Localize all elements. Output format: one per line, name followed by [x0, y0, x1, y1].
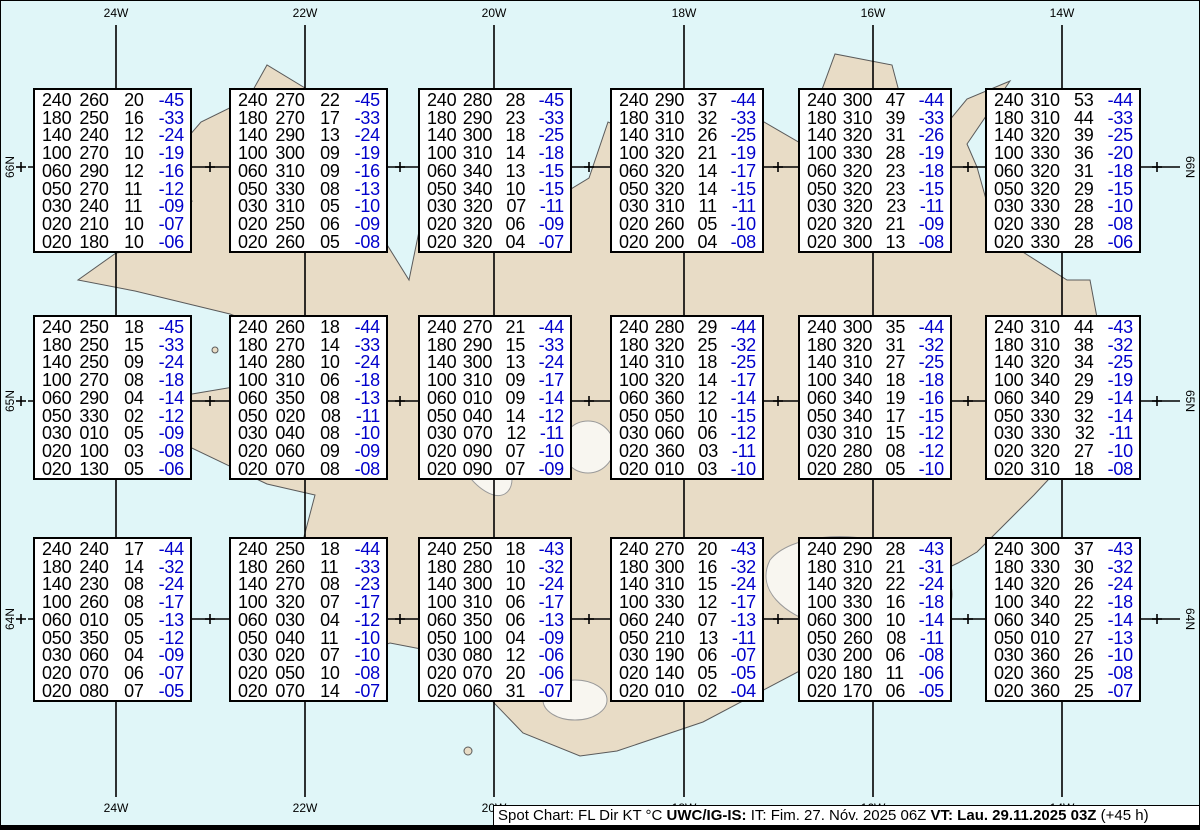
flight-level-value: 020: [238, 683, 275, 701]
wind-speed-value: 07: [506, 443, 539, 461]
longitude-label-top-16W: 16W: [861, 6, 886, 20]
wind-speed-value: 10: [886, 612, 919, 630]
wind-direction-value: 350: [275, 390, 320, 408]
temperature-value: -13: [731, 612, 756, 630]
data-row: 02001003-10: [612, 461, 762, 479]
flight-level-value: 060: [807, 612, 843, 630]
data-row: 06032014-17: [612, 163, 762, 181]
wind-direction-value: 320: [463, 216, 506, 234]
wind-speed-value: 07: [506, 461, 539, 479]
flight-level-value: 060: [238, 612, 275, 630]
flight-level-value: 020: [994, 216, 1030, 234]
data-row: 02001002-04: [612, 683, 762, 701]
temperature-value: -08: [159, 443, 184, 461]
wind-direction-value: 260: [275, 234, 320, 252]
flight-level-value: 060: [994, 612, 1030, 630]
wind-direction-value: 290: [79, 390, 124, 408]
wind-speed-value: 12: [124, 163, 159, 181]
temperature-value: -09: [539, 461, 564, 479]
wind-speed-value: 04: [506, 234, 539, 252]
longitude-label-bottom-24W: 24W: [104, 801, 129, 815]
wind-direction-value: 340: [1030, 390, 1074, 408]
wind-direction-value: 010: [655, 461, 698, 479]
wind-speed-value: 10: [124, 234, 159, 252]
wind-speed-value: 06: [124, 665, 159, 683]
data-row: 02030013-08: [800, 234, 950, 252]
wind-speed-value: 08: [320, 461, 355, 479]
temperature-value: -14: [539, 390, 564, 408]
flight-level-value: 020: [427, 443, 463, 461]
data-row: 02026005-08: [231, 234, 386, 252]
data-row: 06024007-13: [612, 612, 762, 630]
data-row: 02006009-09: [231, 443, 386, 461]
flight-level-value: 060: [427, 390, 463, 408]
flight-level-value: 060: [42, 163, 79, 181]
wind-speed-value: 08: [320, 390, 355, 408]
wind-direction-value: 310: [275, 163, 320, 181]
flight-level-value: 020: [807, 665, 843, 683]
wind-direction-value: 070: [79, 665, 124, 683]
wind-speed-value: 03: [124, 443, 159, 461]
wind-speed-value: 05: [698, 216, 731, 234]
wind-direction-value: 300: [843, 234, 886, 252]
data-row: 02009007-09: [420, 461, 570, 479]
wind-direction-value: 010: [655, 683, 698, 701]
latitude-label-right-64N: 64N: [1183, 608, 1197, 630]
spot-data-box-r2c5: 24030035-4418032031-3214031027-251003401…: [798, 315, 952, 480]
wind-direction-value: 030: [275, 612, 320, 630]
spot-data-box-r2c2: 24026018-4418027014-3314028010-241003100…: [229, 315, 388, 480]
data-row: 02025006-09: [231, 216, 386, 234]
flight-level-value: 060: [807, 163, 843, 181]
data-row: 02010003-08: [35, 443, 190, 461]
temperature-value: -14: [919, 612, 944, 630]
temperature-value: -13: [539, 612, 564, 630]
data-row: 06035006-13: [420, 612, 570, 630]
wind-speed-value: 23: [886, 163, 919, 181]
temperature-value: -14: [159, 390, 184, 408]
temperature-value: -12: [355, 612, 380, 630]
temperature-value: -17: [731, 163, 756, 181]
wind-direction-value: 240: [655, 612, 698, 630]
wind-direction-value: 340: [843, 390, 886, 408]
flight-level-value: 060: [619, 612, 655, 630]
footer-text: (+45 h): [1096, 807, 1148, 824]
data-row: 02032004-07: [420, 234, 570, 252]
wind-speed-value: 14: [320, 683, 355, 701]
wind-speed-value: 05: [320, 234, 355, 252]
wind-direction-value: 320: [843, 216, 886, 234]
data-row: 02014005-05: [612, 665, 762, 683]
longitude-label-top-20W: 20W: [482, 6, 507, 20]
flight-level-value: 020: [807, 683, 843, 701]
wind-direction-value: 070: [463, 665, 506, 683]
temperature-value: -12: [919, 443, 944, 461]
flight-level-value: 020: [807, 234, 843, 252]
temperature-value: -05: [731, 665, 756, 683]
flight-level-value: 060: [238, 163, 275, 181]
wind-direction-value: 140: [655, 665, 698, 683]
wind-speed-value: 28: [1074, 234, 1108, 252]
spot-data-box-r2c4: 24028029-4418032025-3214031018-251003201…: [610, 315, 764, 480]
wind-speed-value: 13: [506, 163, 539, 181]
flight-level-value: 020: [42, 234, 79, 252]
temperature-value: -04: [731, 683, 756, 701]
wind-speed-value: 29: [1074, 390, 1108, 408]
flight-level-value: 020: [994, 443, 1030, 461]
wind-speed-value: 09: [320, 163, 355, 181]
wind-speed-value: 05: [698, 665, 731, 683]
flight-level-value: 020: [427, 216, 463, 234]
flight-level-value: 020: [994, 461, 1030, 479]
wind-speed-value: 06: [320, 216, 355, 234]
temperature-value: -14: [1108, 612, 1133, 630]
data-row: 02018010-06: [35, 234, 190, 252]
wind-speed-value: 03: [698, 461, 731, 479]
wind-direction-value: 330: [1030, 216, 1074, 234]
data-row: 02033028-06: [987, 234, 1139, 252]
longitude-label-bottom-22W: 22W: [293, 801, 318, 815]
wind-direction-value: 320: [1030, 443, 1074, 461]
temperature-value: -15: [539, 163, 564, 181]
footer-bold-text: VT: Lau. 29.11.2025 03Z: [931, 807, 1097, 824]
data-row: 02007008-08: [231, 461, 386, 479]
data-row: 06029004-14: [35, 390, 190, 408]
footer-bold-text: UWC/IG-IS:: [667, 807, 747, 824]
wind-direction-value: 290: [79, 163, 124, 181]
wind-speed-value: 08: [886, 443, 919, 461]
data-row: 06003004-12: [231, 612, 386, 630]
data-row: 02026005-10: [612, 216, 762, 234]
wind-speed-value: 25: [1074, 612, 1108, 630]
wind-direction-value: 070: [275, 683, 320, 701]
temperature-value: -08: [1108, 461, 1133, 479]
temperature-value: -10: [1108, 443, 1133, 461]
temperature-value: -16: [355, 163, 380, 181]
temperature-value: -18: [1108, 163, 1133, 181]
wind-speed-value: 10: [124, 216, 159, 234]
temperature-value: -07: [355, 683, 380, 701]
data-row: 02013005-06: [35, 461, 190, 479]
temperature-value: -05: [919, 683, 944, 701]
latitude-label-left-64N: 64N: [3, 608, 17, 630]
wind-speed-value: 09: [320, 443, 355, 461]
spot-data-box-r3c4: 24027020-4318030016-3214031015-241003301…: [610, 537, 764, 702]
data-row: 02007020-06: [420, 665, 570, 683]
data-row: 06034019-16: [800, 390, 950, 408]
flight-level-value: 020: [427, 683, 463, 701]
wind-direction-value: 200: [655, 234, 698, 252]
wind-direction-value: 170: [843, 683, 886, 701]
wind-direction-value: 180: [843, 665, 886, 683]
flight-level-value: 020: [427, 665, 463, 683]
data-row: 06001005-13: [35, 612, 190, 630]
longitude-label-top-22W: 22W: [293, 6, 318, 20]
wind-speed-value: 25: [1074, 683, 1108, 701]
wind-speed-value: 31: [506, 683, 539, 701]
wind-direction-value: 210: [79, 216, 124, 234]
flight-level-value: 020: [42, 461, 79, 479]
flight-level-value: 060: [427, 612, 463, 630]
vestmannaeyjar-island: [464, 747, 472, 755]
flight-level-value: 020: [994, 683, 1030, 701]
wind-direction-value: 060: [463, 683, 506, 701]
flight-level-value: 060: [42, 612, 79, 630]
temperature-value: -08: [1108, 665, 1133, 683]
flight-level-value: 020: [994, 665, 1030, 683]
wind-direction-value: 010: [79, 612, 124, 630]
wind-speed-value: 07: [698, 612, 731, 630]
flight-level-value: 020: [42, 683, 79, 701]
data-row: 02018011-06: [800, 665, 950, 683]
temperature-value: -06: [1108, 234, 1133, 252]
temperature-value: -13: [355, 390, 380, 408]
wind-direction-value: 180: [79, 234, 124, 252]
latitude-label-left-66N: 66N: [3, 156, 17, 178]
wind-direction-value: 360: [655, 390, 698, 408]
bottom-black-strip: [0, 825, 1200, 830]
flight-level-value: 020: [619, 234, 655, 252]
data-row: 02028008-12: [800, 443, 950, 461]
flight-level-value: 020: [619, 665, 655, 683]
wind-speed-value: 05: [124, 612, 159, 630]
flight-level-value: 020: [238, 216, 275, 234]
temperature-value: -07: [1108, 683, 1133, 701]
temperature-value: -07: [159, 665, 184, 683]
wind-direction-value: 300: [843, 612, 886, 630]
temperature-value: -06: [919, 665, 944, 683]
wind-direction-value: 320: [843, 163, 886, 181]
data-row: 02033028-08: [987, 216, 1139, 234]
data-row: 06032023-18: [800, 163, 950, 181]
wind-speed-value: 27: [1074, 443, 1108, 461]
temperature-value: -09: [355, 216, 380, 234]
data-row: 06029012-16: [35, 163, 190, 181]
wind-speed-value: 07: [124, 683, 159, 701]
wind-direction-value: 250: [275, 216, 320, 234]
data-row: 06001009-14: [420, 390, 570, 408]
wind-direction-value: 090: [463, 461, 506, 479]
flight-level-value: 020: [807, 443, 843, 461]
wind-direction-value: 060: [275, 443, 320, 461]
spot-data-box-r1c3: 24028028-4518029023-3314030018-251003101…: [418, 88, 572, 253]
wind-direction-value: 340: [1030, 612, 1074, 630]
wind-speed-value: 19: [886, 390, 919, 408]
temperature-value: -16: [159, 163, 184, 181]
wind-direction-value: 340: [463, 163, 506, 181]
wind-direction-value: 080: [79, 683, 124, 701]
wind-direction-value: 280: [843, 461, 886, 479]
footer-info-bar: Spot Chart: FL Dir KT °C UWC/IG-IS: IT: …: [493, 805, 1200, 826]
data-row: 02020004-08: [612, 234, 762, 252]
wind-direction-value: 310: [1030, 461, 1074, 479]
wind-speed-value: 02: [698, 683, 731, 701]
spot-data-box-r3c3: 24025018-4318028010-3214030010-241003100…: [418, 537, 572, 702]
flight-level-value: 060: [807, 390, 843, 408]
breidafjordur-island: [212, 347, 218, 353]
flight-level-value: 020: [238, 443, 275, 461]
wind-direction-value: 280: [843, 443, 886, 461]
wind-speed-value: 04: [698, 234, 731, 252]
temperature-value: -07: [539, 234, 564, 252]
flight-level-value: 020: [807, 461, 843, 479]
temperature-value: -10: [731, 216, 756, 234]
wind-direction-value: 320: [655, 163, 698, 181]
temperature-value: -09: [919, 216, 944, 234]
data-row: 06035008-13: [231, 390, 386, 408]
data-row: 02006031-07: [420, 683, 570, 701]
temperature-value: -08: [355, 665, 380, 683]
temperature-value: -08: [355, 234, 380, 252]
wind-speed-value: 05: [886, 461, 919, 479]
wind-direction-value: 260: [655, 216, 698, 234]
latitude-label-right-65N: 65N: [1183, 390, 1197, 412]
footer-text: IT: Fim. 27. Nóv. 2025 06Z: [747, 807, 931, 824]
wind-direction-value: 090: [463, 443, 506, 461]
flight-level-value: 020: [619, 443, 655, 461]
wind-direction-value: 320: [463, 234, 506, 252]
wind-direction-value: 130: [79, 461, 124, 479]
flight-level-value: 060: [427, 163, 463, 181]
wind-speed-value: 06: [506, 612, 539, 630]
flight-level-value: 020: [619, 683, 655, 701]
data-row: 02005010-08: [231, 665, 386, 683]
temperature-value: -14: [731, 390, 756, 408]
temperature-value: -06: [159, 234, 184, 252]
flight-level-value: 020: [807, 216, 843, 234]
data-row: 06031009-16: [231, 163, 386, 181]
wind-direction-value: 350: [463, 612, 506, 630]
temperature-value: -07: [539, 683, 564, 701]
temperature-value: -09: [355, 443, 380, 461]
data-row: 06036012-14: [612, 390, 762, 408]
flight-level-value: 060: [42, 390, 79, 408]
temperature-value: -18: [919, 163, 944, 181]
longitude-label-top-24W: 24W: [104, 6, 129, 20]
flight-level-value: 020: [427, 234, 463, 252]
wind-direction-value: 320: [1030, 163, 1074, 181]
latitude-label-right-66N: 66N: [1183, 156, 1197, 178]
spot-data-box-r1c6: 24031053-4418031044-3314032039-251003303…: [985, 88, 1141, 253]
wind-speed-value: 12: [698, 390, 731, 408]
wind-speed-value: 04: [320, 612, 355, 630]
spot-data-box-r1c2: 24027022-4518027017-3314029013-241003000…: [229, 88, 388, 253]
temperature-value: -10: [919, 461, 944, 479]
wind-speed-value: 10: [320, 665, 355, 683]
temperature-value: -08: [355, 461, 380, 479]
spot-data-box-r3c1: 24024017-4418024014-3214023008-241002600…: [33, 537, 192, 702]
wind-speed-value: 06: [886, 683, 919, 701]
spot-data-box-r2c1: 24025018-4518025015-3314025009-241002700…: [33, 315, 192, 480]
longitude-label-top-14W: 14W: [1050, 6, 1075, 20]
wind-direction-value: 360: [1030, 665, 1074, 683]
footer-text: Spot Chart: FL Dir KT °C: [498, 807, 667, 824]
flight-level-value: 020: [238, 665, 275, 683]
flight-level-value: 020: [619, 216, 655, 234]
spot-data-box-r2c3: 24027021-4418029015-3314030013-241003100…: [418, 315, 572, 480]
spot-data-box-r3c6: 24030037-4318033030-3214032026-241003402…: [985, 537, 1141, 702]
data-row: 06034029-14: [987, 390, 1139, 408]
flight-level-value: 060: [994, 163, 1030, 181]
wind-speed-value: 09: [506, 390, 539, 408]
data-row: 02007006-07: [35, 665, 190, 683]
temperature-value: -08: [1108, 216, 1133, 234]
temperature-value: -09: [539, 216, 564, 234]
spot-data-box-r1c1: 24026020-4518025016-3314024012-241002701…: [33, 88, 192, 253]
data-row: 02021010-07: [35, 216, 190, 234]
spot-data-box-r1c4: 24029037-4418031032-3314031026-251003202…: [610, 88, 764, 253]
wind-speed-value: 05: [124, 461, 159, 479]
temperature-value: -05: [159, 683, 184, 701]
spot-data-box-r1c5: 24030047-4418031039-3314032031-261003302…: [798, 88, 952, 253]
wind-speed-value: 25: [1074, 665, 1108, 683]
flight-level-value: 020: [238, 234, 275, 252]
wind-direction-value: 070: [275, 461, 320, 479]
wind-direction-value: 330: [1030, 234, 1074, 252]
temperature-value: -08: [919, 234, 944, 252]
flight-level-value: 020: [42, 443, 79, 461]
wind-speed-value: 04: [124, 390, 159, 408]
temperature-value: -14: [1108, 390, 1133, 408]
flight-level-value: 020: [238, 461, 275, 479]
data-row: 02008007-05: [35, 683, 190, 701]
temperature-value: -08: [731, 234, 756, 252]
temperature-value: -16: [919, 390, 944, 408]
flight-level-value: 020: [42, 216, 79, 234]
flight-level-value: 020: [619, 461, 655, 479]
wind-direction-value: 360: [655, 443, 698, 461]
flight-level-value: 060: [619, 390, 655, 408]
temperature-value: -06: [539, 665, 564, 683]
temperature-value: -10: [539, 443, 564, 461]
wind-speed-value: 31: [1074, 163, 1108, 181]
wind-speed-value: 28: [1074, 216, 1108, 234]
data-row: 06030010-14: [800, 612, 950, 630]
data-row: 02036003-11: [612, 443, 762, 461]
data-row: 02007014-07: [231, 683, 386, 701]
temperature-value: -13: [159, 612, 184, 630]
data-row: 02032027-10: [987, 443, 1139, 461]
wind-speed-value: 03: [698, 443, 731, 461]
data-row: 02032021-09: [800, 216, 950, 234]
wind-speed-value: 20: [506, 665, 539, 683]
wind-speed-value: 11: [886, 665, 919, 683]
longitude-label-top-18W: 18W: [672, 6, 697, 20]
flight-level-value: 020: [427, 461, 463, 479]
wind-direction-value: 010: [463, 390, 506, 408]
flight-level-value: 060: [619, 163, 655, 181]
data-row: 02032006-09: [420, 216, 570, 234]
data-row: 06032031-18: [987, 163, 1139, 181]
temperature-value: -11: [732, 443, 756, 461]
spot-data-box-r3c5: 24029028-4318031021-3114032022-241003301…: [798, 537, 952, 702]
wind-direction-value: 100: [79, 443, 124, 461]
wind-speed-value: 14: [698, 163, 731, 181]
flight-level-value: 020: [994, 234, 1030, 252]
flight-level-value: 060: [238, 390, 275, 408]
temperature-value: -06: [159, 461, 184, 479]
data-row: 02036025-07: [987, 683, 1139, 701]
wind-speed-value: 18: [1074, 461, 1108, 479]
spot-data-box-r3c2: 24025018-4418026011-3314027008-231003200…: [229, 537, 388, 702]
spot-data-box-r2c6: 24031044-4318031038-3214032034-251003402…: [985, 315, 1141, 480]
wind-direction-value: 050: [275, 665, 320, 683]
wind-speed-value: 21: [886, 216, 919, 234]
wind-direction-value: 360: [1030, 683, 1074, 701]
temperature-value: -10: [731, 461, 756, 479]
temperature-value: -07: [159, 216, 184, 234]
data-row: 06034013-15: [420, 163, 570, 181]
